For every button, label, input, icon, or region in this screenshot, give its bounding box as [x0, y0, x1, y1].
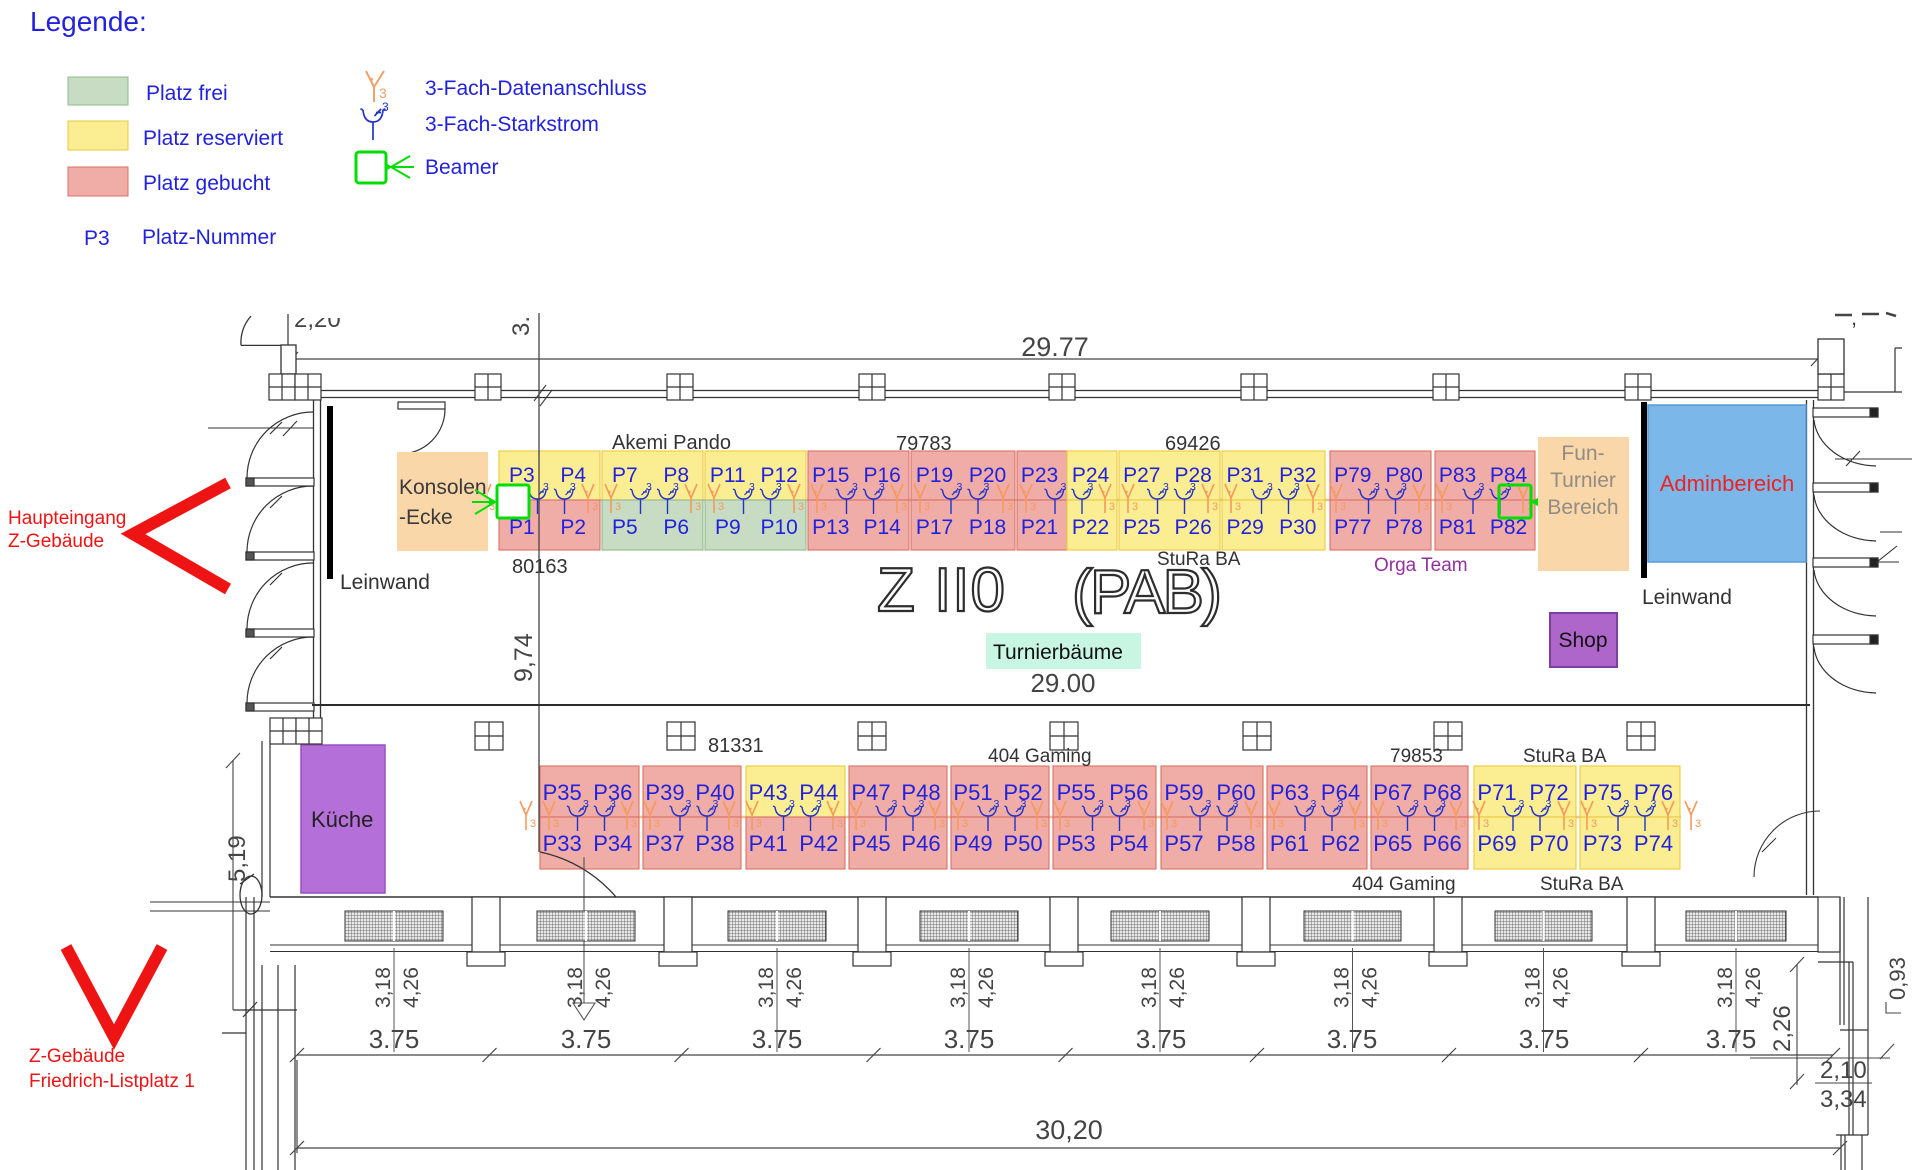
svg-text:P55: P55 — [1057, 780, 1096, 805]
svg-text:StuRa BA: StuRa BA — [1523, 746, 1607, 767]
svg-text:0,93: 0,93 — [1885, 957, 1910, 1000]
svg-text:P18: P18 — [969, 516, 1006, 539]
svg-text:3-Fach-Datenanschluss: 3-Fach-Datenanschluss — [425, 77, 647, 100]
svg-text:P42: P42 — [799, 831, 838, 856]
svg-text:Leinwand: Leinwand — [1642, 586, 1732, 609]
svg-text:30,20: 30,20 — [1035, 1115, 1103, 1145]
svg-text:Platz reserviert: Platz reserviert — [143, 127, 283, 150]
svg-text:3.75: 3.75 — [1519, 1024, 1570, 1054]
svg-text:29.77: 29.77 — [1021, 332, 1089, 362]
svg-text:P33: P33 — [543, 831, 582, 856]
svg-text:P43: P43 — [749, 780, 788, 805]
svg-text:P70: P70 — [1529, 831, 1568, 856]
svg-text:2,10: 2,10 — [1820, 1057, 1867, 1084]
svg-text:3: 3 — [379, 85, 387, 101]
svg-text:P3: P3 — [84, 227, 110, 250]
svg-text:P45: P45 — [851, 831, 890, 856]
svg-text:P46: P46 — [901, 831, 940, 856]
svg-text:3.75: 3.75 — [752, 1024, 803, 1054]
svg-text:P37: P37 — [645, 831, 684, 856]
svg-text:P71: P71 — [1477, 780, 1516, 805]
svg-text:3.75: 3.75 — [561, 1024, 612, 1054]
svg-text:Akemi Pando: Akemi Pando — [612, 432, 731, 454]
svg-text:P75: P75 — [1583, 780, 1622, 805]
svg-text:P65: P65 — [1373, 831, 1412, 856]
svg-text:P10: P10 — [761, 516, 798, 539]
svg-text:3,34: 3,34 — [1820, 1086, 1867, 1113]
svg-text:P19: P19 — [916, 464, 953, 487]
svg-text:(PAB): (PAB) — [1072, 558, 1222, 627]
svg-text:P50: P50 — [1003, 831, 1042, 856]
svg-text:3,18: 3,18 — [947, 967, 970, 1008]
svg-text:Fun-: Fun- — [1561, 442, 1604, 465]
svg-text:-Ecke: -Ecke — [399, 506, 453, 529]
svg-text:P21: P21 — [1021, 516, 1058, 539]
svg-text:P41: P41 — [749, 831, 788, 856]
svg-text:Z II0: Z II0 — [877, 556, 1005, 625]
svg-text:P61: P61 — [1270, 831, 1309, 856]
svg-text:P26: P26 — [1175, 516, 1212, 539]
svg-text:404 Gaming: 404 Gaming — [1352, 874, 1456, 895]
svg-text:81331: 81331 — [708, 735, 764, 757]
svg-text:3.: 3. — [508, 316, 535, 336]
svg-text:Turnier: Turnier — [1550, 469, 1616, 492]
svg-text:3,18: 3,18 — [1138, 967, 1161, 1008]
svg-text:29.00: 29.00 — [1030, 668, 1095, 698]
svg-text:P81: P81 — [1439, 516, 1476, 539]
svg-text:Küche: Küche — [311, 807, 373, 832]
svg-text:3.75: 3.75 — [1136, 1024, 1187, 1054]
svg-text:4,26: 4,26 — [400, 967, 423, 1008]
svg-text:P2: P2 — [560, 516, 586, 539]
svg-text:P11: P11 — [710, 464, 746, 487]
svg-text:P22: P22 — [1072, 516, 1109, 539]
svg-text:Legende:: Legende: — [30, 6, 147, 37]
svg-text:Platz-Nummer: Platz-Nummer — [142, 226, 276, 249]
svg-text:P83: P83 — [1439, 464, 1476, 487]
svg-text:3.75: 3.75 — [1706, 1024, 1757, 1054]
svg-text:Z-Gebäude: Z-Gebäude — [29, 1046, 125, 1067]
svg-text:Leinwand: Leinwand — [340, 571, 430, 594]
svg-text:P74: P74 — [1634, 831, 1673, 856]
svg-text:P15: P15 — [812, 464, 849, 487]
svg-text:P62: P62 — [1321, 831, 1360, 856]
svg-text:P9: P9 — [715, 516, 741, 539]
svg-text:4,26: 4,26 — [592, 967, 615, 1008]
svg-text:P79: P79 — [1334, 464, 1371, 487]
svg-text:9,74: 9,74 — [510, 633, 538, 682]
svg-text:Turnierbäume: Turnierbäume — [993, 641, 1123, 664]
svg-text:P31: P31 — [1227, 464, 1264, 487]
svg-text:Bereich: Bereich — [1547, 496, 1618, 519]
svg-text:4,26: 4,26 — [1550, 967, 1573, 1008]
svg-text:Orga Team: Orga Team — [1374, 555, 1468, 576]
svg-text:P34: P34 — [593, 831, 632, 856]
svg-text:4,26: 4,26 — [975, 967, 998, 1008]
svg-text:404 Gaming: 404 Gaming — [988, 746, 1092, 767]
svg-text:4,26: 4,26 — [1359, 967, 1382, 1008]
svg-text:4,26: 4,26 — [1166, 967, 1189, 1008]
svg-text:P38: P38 — [695, 831, 734, 856]
svg-text:P49: P49 — [953, 831, 992, 856]
svg-text:Platz frei: Platz frei — [146, 82, 228, 105]
svg-text:P73: P73 — [1583, 831, 1622, 856]
svg-text:P58: P58 — [1216, 831, 1255, 856]
svg-text:79783: 79783 — [896, 433, 952, 455]
svg-text:79853: 79853 — [1390, 746, 1443, 767]
svg-text:Haupteingang: Haupteingang — [8, 508, 126, 529]
svg-text:3.75: 3.75 — [1327, 1024, 1378, 1054]
svg-text:P53: P53 — [1057, 831, 1096, 856]
svg-text:P35: P35 — [543, 780, 582, 805]
svg-text:P69: P69 — [1477, 831, 1516, 856]
svg-text:P78: P78 — [1386, 516, 1423, 539]
svg-text:,: , — [1851, 305, 1857, 330]
svg-text:3-Fach-Starkstrom: 3-Fach-Starkstrom — [425, 113, 599, 136]
svg-text:Adminbereich: Adminbereich — [1660, 471, 1795, 496]
svg-text:4,26: 4,26 — [1742, 967, 1765, 1008]
svg-text:3,18: 3,18 — [1331, 967, 1354, 1008]
svg-text:P59: P59 — [1164, 780, 1203, 805]
svg-text:4,26: 4,26 — [783, 967, 806, 1008]
svg-text:P51: P51 — [953, 780, 992, 805]
svg-text:3,18: 3,18 — [372, 967, 395, 1008]
svg-text:P14: P14 — [864, 516, 902, 539]
svg-text:P29: P29 — [1227, 516, 1264, 539]
svg-text:P13: P13 — [812, 516, 849, 539]
svg-text:3,18: 3,18 — [1522, 967, 1545, 1008]
svg-text:P25: P25 — [1123, 516, 1160, 539]
svg-text:P77: P77 — [1334, 516, 1371, 539]
svg-text:P7: P7 — [612, 464, 638, 487]
svg-text:P17: P17 — [916, 516, 953, 539]
svg-text:P39: P39 — [645, 780, 684, 805]
svg-text:P47: P47 — [851, 780, 890, 805]
svg-text:P57: P57 — [1164, 831, 1203, 856]
svg-text:P30: P30 — [1279, 516, 1316, 539]
svg-text:P54: P54 — [1109, 831, 1148, 856]
svg-text:3,18: 3,18 — [564, 967, 587, 1008]
svg-text:Shop: Shop — [1558, 629, 1607, 652]
svg-text:P23: P23 — [1021, 464, 1058, 487]
svg-text:P5: P5 — [612, 516, 638, 539]
svg-text:Beamer: Beamer — [425, 156, 499, 179]
svg-text:P63: P63 — [1270, 780, 1309, 805]
svg-text:3,18: 3,18 — [755, 967, 778, 1008]
svg-text:Friedrich-Listplatz 1: Friedrich-Listplatz 1 — [29, 1071, 195, 1092]
svg-text:3.75: 3.75 — [369, 1024, 420, 1054]
svg-text:Konsolen: Konsolen — [399, 476, 487, 499]
svg-text:69426: 69426 — [1165, 433, 1221, 455]
svg-text:2,26: 2,26 — [1769, 1005, 1796, 1052]
svg-text:Platz gebucht: Platz gebucht — [143, 172, 270, 195]
svg-text:Z-Gebäude: Z-Gebäude — [8, 531, 104, 552]
svg-text:80163: 80163 — [512, 556, 568, 578]
svg-text:StuRa BA: StuRa BA — [1540, 874, 1624, 895]
svg-text:5,19: 5,19 — [224, 835, 251, 882]
svg-text:P6: P6 — [663, 516, 689, 539]
svg-text:P27: P27 — [1123, 464, 1160, 487]
svg-text:P66: P66 — [1423, 831, 1462, 856]
svg-text:3: 3 — [382, 100, 389, 114]
svg-text:3,18: 3,18 — [1714, 967, 1737, 1008]
svg-text:3.75: 3.75 — [944, 1024, 995, 1054]
svg-text:P67: P67 — [1373, 780, 1412, 805]
